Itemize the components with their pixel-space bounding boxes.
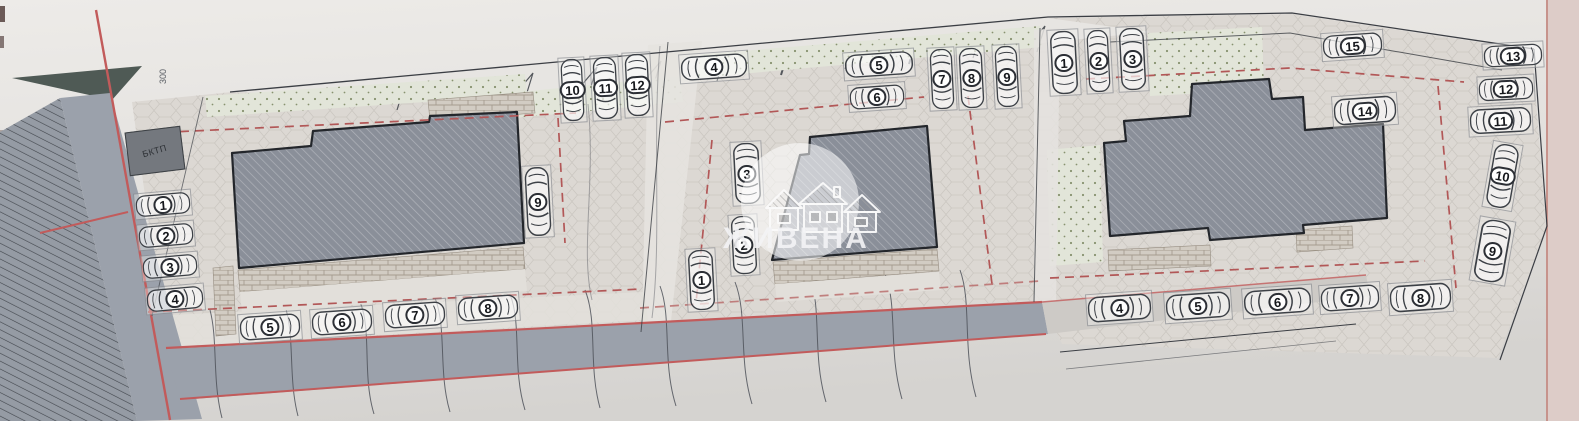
parking-spot-b3-13: 13 [1481,40,1544,70]
parking-spot-b2-7: 7 [926,46,957,111]
parking-spot-b2-1: 1 [684,247,718,313]
parking-spot-b1-5: 5 [237,310,303,344]
parking-spot-b1-11: 11 [589,54,621,121]
parking-spot-b1-9: 9 [521,164,555,238]
site-plan-page: БКТП 300 1234567891011121234567891234567… [0,0,1579,421]
parking-spot-b3-10: 10 [1481,140,1523,212]
parking-spot-b3-6: 6 [1241,284,1314,320]
parking-spot-b1-7: 7 [382,298,448,332]
parking-spot-b3-2: 2 [1083,27,1113,94]
parking-spot-b3-8: 8 [1387,279,1454,316]
parking-spot-b1-8: 8 [455,291,521,325]
parking-spot-b2-8: 8 [955,45,987,110]
parking-spot-b3-7: 7 [1318,281,1382,315]
parking-spot-b1-4: 4 [144,282,206,315]
parking-spot-b2-9: 9 [991,43,1022,109]
parking-spot-b3-4: 4 [1085,290,1154,327]
parking-spot-b3-1: 1 [1046,28,1081,97]
parking-spot-b2-6: 6 [847,81,907,113]
parking-spot-b1-12: 12 [621,51,653,118]
parking-spot-b2-2: 2 [727,213,760,276]
parking-spot-b3-9: 9 [1469,215,1517,286]
parking-spot-b1-2: 2 [136,220,196,252]
parking-spot-b1-10: 10 [557,56,587,123]
parking-spots-layer: 1234567891011121234567891234567891011121… [0,0,1579,421]
parking-spot-b3-5: 5 [1163,288,1233,325]
parking-spot-b1-1: 1 [133,189,193,221]
parking-spot-b3-3: 3 [1115,25,1149,93]
parking-spot-b2-3: 3 [729,140,764,207]
spot-number: 11 [592,78,619,97]
parking-spot-b2-4: 4 [678,50,750,85]
parking-spot-b2-5: 5 [842,48,916,82]
parking-spot-b3-12: 12 [1476,74,1535,105]
parking-spot-b3-11: 11 [1467,103,1534,137]
spot-number: 11 [1487,111,1514,130]
parking-spot-b1-6: 6 [309,305,375,339]
parking-spot-b3-14: 14 [1331,92,1399,130]
parking-spot-b1-3: 3 [140,251,200,283]
parking-spot-b3-15: 15 [1320,29,1385,62]
